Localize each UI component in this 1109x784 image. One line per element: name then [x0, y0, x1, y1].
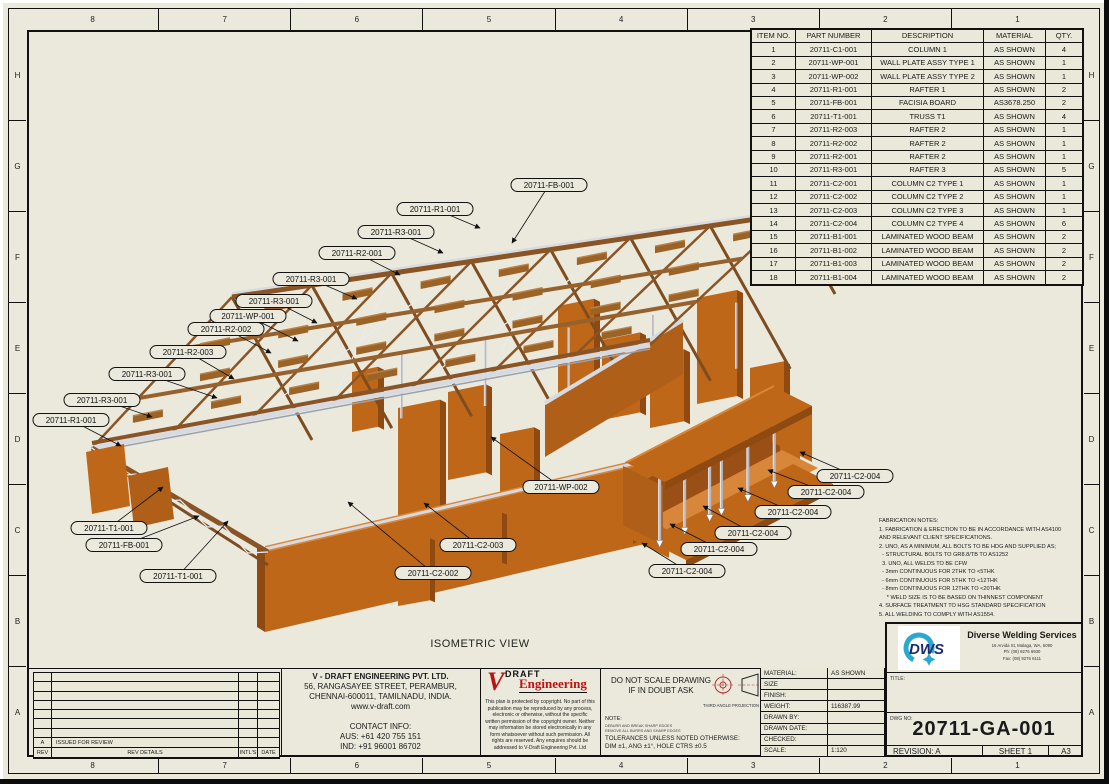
parts-table-cell: AS SHOWN — [984, 191, 1046, 204]
rev-empty-cell — [52, 673, 239, 682]
zone-label-row: H — [1084, 30, 1099, 121]
rev-row-cell: ISSUED FOR REVIEW — [52, 738, 239, 748]
parts-table-cell: AS SHOWN — [984, 110, 1046, 123]
revision-table: AISSUED FOR REVIEWREVREV DETAILSINTL'SDA… — [33, 672, 280, 759]
vdraft-logo-engineering: Engineering — [519, 676, 587, 693]
page-edge-bottom — [0, 779, 1109, 784]
parts-table-cell: DESCRIPTION — [872, 30, 984, 43]
zone-label-row: G — [1084, 121, 1099, 212]
rev-empty-cell — [239, 682, 258, 691]
parts-table-cell: ITEM NO. — [752, 30, 796, 43]
zone-label-column: 3 — [688, 9, 820, 30]
zone-label-row: B — [9, 576, 26, 667]
parts-table-cell: 1 — [1046, 124, 1082, 137]
parts-table-cell: 8 — [752, 137, 796, 150]
parts-table-cell: AS SHOWN — [984, 43, 1046, 56]
rev-empty-cell — [258, 729, 279, 738]
parts-table-cell: 5 — [1046, 164, 1082, 177]
parts-table-cell: AS SHOWN — [984, 70, 1046, 83]
rev-empty-cell — [52, 692, 239, 701]
vdraft-logo: V DRAFT Engineering — [481, 669, 599, 695]
zone-label-column: 5 — [423, 9, 555, 30]
view-label: ISOMETRIC VIEW — [330, 638, 630, 650]
parts-table-cell: AS SHOWN — [984, 137, 1046, 150]
parts-table-cell: 3 — [752, 70, 796, 83]
paper-size: A3 — [1049, 745, 1083, 757]
rev-row-cell: A — [34, 738, 52, 748]
zone-label-row: H — [9, 30, 26, 121]
parts-table-cell: COLUMN C2 TYPE 3 — [872, 204, 984, 217]
parts-table-cell: 20711-C2-001 — [796, 177, 872, 190]
field-value: AS SHOWN — [828, 668, 885, 679]
rev-empty-cell — [52, 682, 239, 691]
parts-table-cell: 20711-R1-001 — [796, 84, 872, 97]
rev-empty-cell — [239, 719, 258, 728]
rev-empty-cell — [34, 729, 52, 738]
parts-table-cell: 16 — [752, 244, 796, 257]
parts-table-cell: 1 — [1046, 177, 1082, 190]
parts-table-cell: FACISIA BOARD — [872, 97, 984, 110]
parts-table-cell: 6 — [1046, 217, 1082, 230]
parts-table-cell: RAFTER 1 — [872, 84, 984, 97]
field-value: 1:120 — [828, 746, 885, 757]
field-value: 116387.99 — [828, 701, 885, 712]
contact-heading: CONTACT INFO: — [282, 722, 479, 732]
zone-label-column: 1 — [952, 9, 1083, 30]
titleblock-divider — [600, 668, 601, 757]
rev-empty-cell — [258, 682, 279, 691]
parts-table-cell: 2 — [1046, 271, 1082, 284]
parts-table-cell: AS SHOWN — [984, 57, 1046, 70]
title-field-label: TITLE: — [890, 676, 905, 682]
zone-label-column: 6 — [291, 758, 423, 773]
parts-table-cell: 20711-R3-001 — [796, 164, 872, 177]
parts-table-cell: 4 — [1046, 43, 1082, 56]
zone-label-column: 1 — [952, 758, 1083, 773]
parts-table-cell: RAFTER 3 — [872, 164, 984, 177]
parts-table-cell: TRUSS T1 — [872, 110, 984, 123]
zone-label-column: 4 — [556, 758, 688, 773]
parts-table-cell: AS SHOWN — [984, 151, 1046, 164]
rev-empty-cell — [258, 719, 279, 728]
parts-table-cell: 17 — [752, 258, 796, 271]
parts-table-cell: AS SHOWN — [984, 84, 1046, 97]
dws-logo-icon: DWS — [898, 626, 960, 670]
parts-table-cell: 20711-B1-004 — [796, 271, 872, 284]
parts-table-cell: 2 — [752, 57, 796, 70]
field-label: DRAWN DATE: — [761, 724, 828, 735]
parts-table-cell: 18 — [752, 271, 796, 284]
zone-label-row: E — [1084, 303, 1099, 394]
rev-empty-cell — [52, 701, 239, 710]
field-label: DRAWN BY: — [761, 712, 828, 723]
parts-table-cell: 1 — [1046, 204, 1082, 217]
parts-table-cell: 20711-B1-002 — [796, 244, 872, 257]
parts-table-cell: 1 — [752, 43, 796, 56]
rev-empty-cell — [239, 692, 258, 701]
parts-table-cell: RAFTER 2 — [872, 124, 984, 137]
parts-table: ITEM NO.PART NUMBERDESCRIPTIONMATERIALQT… — [750, 28, 1084, 286]
parts-table-cell: 1 — [1046, 151, 1082, 164]
page-edge-right — [1104, 0, 1109, 784]
zone-strip-top: 87654321 — [27, 9, 1083, 30]
field-label: SCALE: — [761, 746, 828, 757]
parts-table-cell: 4 — [752, 84, 796, 97]
rev-empty-cell — [52, 719, 239, 728]
rev-empty-cell — [258, 673, 279, 682]
field-value — [828, 679, 885, 690]
parts-table-cell: 1 — [1046, 70, 1082, 83]
parts-table-cell: 20711-C1-001 — [796, 43, 872, 56]
parts-table-cell: COLUMN 1 — [872, 43, 984, 56]
field-label: FINISH: — [761, 690, 828, 701]
svg-text:DWS: DWS — [909, 641, 944, 658]
field-value — [828, 724, 885, 735]
revision-value: REVISION: A — [885, 745, 983, 757]
note-small-text: DEBURR AND BREAK SHARP EDGES REMOVE ALL … — [605, 724, 681, 734]
zone-label-row: A — [1084, 667, 1099, 757]
zone-strip-left: HGFEDCBA — [9, 30, 26, 757]
vdraft-logo-box: V DRAFT Engineering This plan is protect… — [481, 669, 599, 756]
drawing-number: 20711-GA-001 — [885, 718, 1083, 741]
parts-table-cell: AS SHOWN — [984, 231, 1046, 244]
rev-empty-cell — [34, 701, 52, 710]
sheet-number: SHEET 1 — [983, 745, 1049, 757]
rev-empty-cell — [239, 673, 258, 682]
parts-table-cell: 20711-C2-002 — [796, 191, 872, 204]
parts-table-cell: LAMINATED WOOD BEAM — [872, 231, 984, 244]
parts-table-cell: AS SHOWN — [984, 217, 1046, 230]
drawing-fields-table: MATERIAL:AS SHOWNSIZEFINISH:WEIGHT:11638… — [760, 668, 885, 757]
parts-table-cell: AS SHOWN — [984, 204, 1046, 217]
parts-table-cell: AS SHOWN — [984, 124, 1046, 137]
parts-table-cell: 7 — [752, 124, 796, 137]
parts-table-cell: 2 — [1046, 244, 1082, 257]
parts-table-cell: 9 — [752, 151, 796, 164]
dws-logo-box: DWS — [898, 626, 960, 670]
parts-table-cell: 20711-FB-001 — [796, 97, 872, 110]
rev-header-cell: DATE — [258, 748, 279, 758]
do-not-scale-note: DO NOT SCALE DRAWINGIF IN DOUBT ASK — [602, 676, 720, 697]
dws-bottom-row: REVISION: A SHEET 1 A3 — [885, 745, 1083, 757]
parts-table-cell: AS SHOWN — [984, 244, 1046, 257]
parts-table-cell: MATERIAL — [984, 30, 1046, 43]
field-value — [828, 712, 885, 723]
rev-empty-cell — [52, 729, 239, 738]
zone-label-row: C — [9, 485, 26, 576]
zone-label-row: F — [1084, 212, 1099, 303]
company-name: V - DRAFT ENGINEERING PVT. LTD. — [282, 672, 479, 682]
company-address-line: 56, RANGASAYEE STREET, PERAMBUR, — [282, 682, 479, 692]
rev-row-cell — [239, 738, 258, 748]
zone-label-row: E — [9, 303, 26, 394]
parts-table-cell: LAMINATED WOOD BEAM — [872, 258, 984, 271]
rev-header-cell: REV — [34, 748, 52, 758]
company-info-block: V - DRAFT ENGINEERING PVT. LTD.56, RANGA… — [282, 672, 479, 752]
zone-strip-bottom: 87654321 — [27, 758, 1083, 773]
parts-table-cell: AS3678.250 — [984, 97, 1046, 110]
parts-table-cell: 20711-R2-002 — [796, 137, 872, 150]
field-label: SIZE — [761, 679, 828, 690]
tolerance-line: DIM ±1, ANG ±1°, HOLE CTRS ±0.5 — [605, 743, 740, 751]
zone-strip-right: HGFEDCBA — [1084, 30, 1099, 757]
projection-label: THIRD ANGLE PROJECTION — [700, 703, 762, 708]
parts-table-cell: 1 — [1046, 137, 1082, 150]
zone-label-column: 3 — [688, 758, 820, 773]
parts-table-cell: 20711-B1-001 — [796, 231, 872, 244]
parts-table-cell: WALL PLATE ASSY TYPE 1 — [872, 57, 984, 70]
parts-table-cell: 20711-R2-003 — [796, 124, 872, 137]
parts-table-cell: AS SHOWN — [984, 164, 1046, 177]
parts-table-cell: 11 — [752, 177, 796, 190]
dws-divider — [885, 672, 1083, 673]
parts-table-cell: COLUMN C2 TYPE 1 — [872, 177, 984, 190]
parts-table-cell: 6 — [752, 110, 796, 123]
dws-company-name: Diverse Welding Services — [963, 630, 1081, 640]
do-not-scale-line: IF IN DOUBT ASK — [602, 686, 720, 696]
zone-label-column: 5 — [423, 758, 555, 773]
parts-table-cell: 2 — [1046, 258, 1082, 271]
parts-table-cell: 13 — [752, 204, 796, 217]
dws-company-address: 16 Arvida St, Malaga, WA, 6090Ph: (08) 9… — [963, 643, 1081, 662]
tolerance-line: TOLERANCES UNLESS NOTED OTHERWISE: — [605, 735, 740, 743]
field-value — [828, 690, 885, 701]
rev-empty-cell — [258, 701, 279, 710]
parts-table-cell: 20711-C2-004 — [796, 217, 872, 230]
parts-table-cell: 15 — [752, 231, 796, 244]
company-address-line: CHENNAI-600011, TAMILNADU, INDIA. — [282, 692, 479, 702]
copyright-text: This plan is protected by copyright. No … — [481, 699, 599, 751]
do-not-scale-line: DO NOT SCALE DRAWING — [602, 676, 720, 686]
note-label: NOTE: — [605, 716, 622, 722]
parts-table-cell: AS SHOWN — [984, 271, 1046, 284]
parts-table-cell: 20711-B1-003 — [796, 258, 872, 271]
zone-label-row: D — [9, 394, 26, 485]
parts-table-cell: 20711-WP-001 — [796, 57, 872, 70]
parts-table-cell: 2 — [1046, 84, 1082, 97]
zone-label-column: 8 — [27, 9, 159, 30]
rev-empty-cell — [258, 710, 279, 719]
parts-table-cell: 14 — [752, 217, 796, 230]
parts-table-cell: 10 — [752, 164, 796, 177]
rev-empty-cell — [258, 692, 279, 701]
zone-label-column: 2 — [820, 9, 952, 30]
contact-line: IND: +91 96001 86702 — [282, 742, 479, 752]
vdraft-logo-v: V — [487, 667, 504, 697]
parts-table-cell: AS SHOWN — [984, 258, 1046, 271]
parts-table-cell: LAMINATED WOOD BEAM — [872, 244, 984, 257]
dws-address-line: Fax: (08) 9276 6111 — [963, 656, 1081, 662]
parts-table-cell: WALL PLATE ASSY TYPE 2 — [872, 70, 984, 83]
parts-table-cell: 2 — [1046, 231, 1082, 244]
parts-table-cell: COLUMN C2 TYPE 4 — [872, 217, 984, 230]
tolerances-text: TOLERANCES UNLESS NOTED OTHERWISE:DIM ±1… — [605, 735, 740, 751]
zone-label-row: G — [9, 121, 26, 212]
parts-table-cell: 5 — [752, 97, 796, 110]
fabrication-notes: FABRICATION NOTES: 1. FABRICATION & EREC… — [879, 517, 1091, 619]
zone-label-column: 7 — [159, 758, 291, 773]
parts-table-cell: LAMINATED WOOD BEAM — [872, 271, 984, 284]
field-label: CHECKED: — [761, 735, 828, 746]
rev-empty-cell — [239, 701, 258, 710]
zone-label-row: A — [9, 667, 26, 757]
parts-table-cell: AS SHOWN — [984, 177, 1046, 190]
field-value — [828, 735, 885, 746]
parts-table-cell: 1 — [1046, 57, 1082, 70]
spacer — [282, 712, 479, 722]
rev-empty-cell — [34, 682, 52, 691]
parts-table-cell: 20711-T1-001 — [796, 110, 872, 123]
rev-empty-cell — [52, 710, 239, 719]
rev-empty-cell — [34, 710, 52, 719]
parts-table-cell: PART NUMBER — [796, 30, 872, 43]
parts-table-cell: QTY. — [1046, 30, 1082, 43]
rev-header-cell: INTL'S — [239, 748, 258, 758]
rev-empty-cell — [239, 729, 258, 738]
zone-label-row: D — [1084, 394, 1099, 485]
field-label: MATERIAL: — [761, 668, 828, 679]
zone-label-column: 6 — [291, 9, 423, 30]
drawing-sheet-page: 87654321 87654321 HGFEDCBA HGFEDCBA 2071… — [0, 0, 1109, 784]
parts-table-cell: 12 — [752, 191, 796, 204]
parts-table-cell: RAFTER 2 — [872, 151, 984, 164]
company-address-line: www.v-draft.com — [282, 702, 479, 712]
rev-empty-cell — [239, 710, 258, 719]
parts-table-cell: 1 — [1046, 191, 1082, 204]
zone-label-column: 8 — [27, 758, 159, 773]
zone-label-column: 4 — [556, 9, 688, 30]
rev-empty-cell — [34, 673, 52, 682]
rev-row-cell — [258, 738, 279, 748]
parts-table-cell: 20711-C2-003 — [796, 204, 872, 217]
zone-label-column: 2 — [820, 758, 952, 773]
parts-table-cell: COLUMN C2 TYPE 2 — [872, 191, 984, 204]
zone-label-column: 7 — [159, 9, 291, 30]
field-label: WEIGHT: — [761, 701, 828, 712]
third-angle-projection-icon — [712, 669, 762, 703]
contact-line: AUS: +61 420 755 151 — [282, 732, 479, 742]
parts-table-cell: RAFTER 2 — [872, 137, 984, 150]
dws-divider — [885, 712, 1083, 713]
parts-table-cell: 4 — [1046, 110, 1082, 123]
rev-empty-cell — [34, 719, 52, 728]
rev-empty-cell — [34, 692, 52, 701]
zone-label-row: F — [9, 212, 26, 303]
parts-table-cell: 20711-WP-002 — [796, 70, 872, 83]
parts-table-cell: 2 — [1046, 97, 1082, 110]
rev-header-cell: REV DETAILS — [52, 748, 239, 758]
parts-table-cell: 20711-R2-001 — [796, 151, 872, 164]
